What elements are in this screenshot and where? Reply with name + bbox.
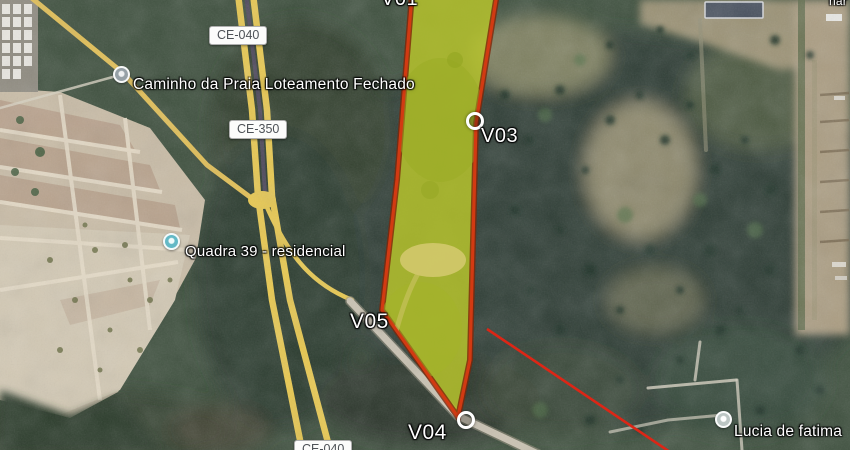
vertex-label-v04: V04	[408, 421, 447, 445]
vertex-label-v03: V03	[481, 125, 518, 148]
vertex-label-v01: V01	[381, 0, 418, 11]
place-label-quadra39[interactable]: Quadra 39 - residencial	[185, 243, 346, 260]
poi-marker-quadra39[interactable]	[163, 233, 180, 250]
vertex-label-v05: V05	[350, 310, 389, 334]
boundary-line-red	[487, 329, 670, 450]
road-badge-ce350: CE-350	[229, 120, 287, 139]
poi-marker-caminho[interactable]	[113, 66, 130, 83]
road-badge-ce040-bottom: CE-040	[294, 440, 352, 450]
place-label-caminho[interactable]: Caminho da Praia Loteamento Fechado	[133, 76, 415, 94]
place-label-lucia[interactable]: Lucia de fatima	[734, 423, 842, 441]
map-canvas[interactable]: Caminho da Praia Loteamento Fechado Quad…	[0, 0, 850, 450]
place-label-partial-corner: nar	[829, 0, 847, 8]
road-badge-ce040-top: CE-040	[209, 26, 267, 45]
vertex-marker-v04-icon	[457, 411, 475, 429]
poi-marker-lucia[interactable]	[715, 411, 732, 428]
